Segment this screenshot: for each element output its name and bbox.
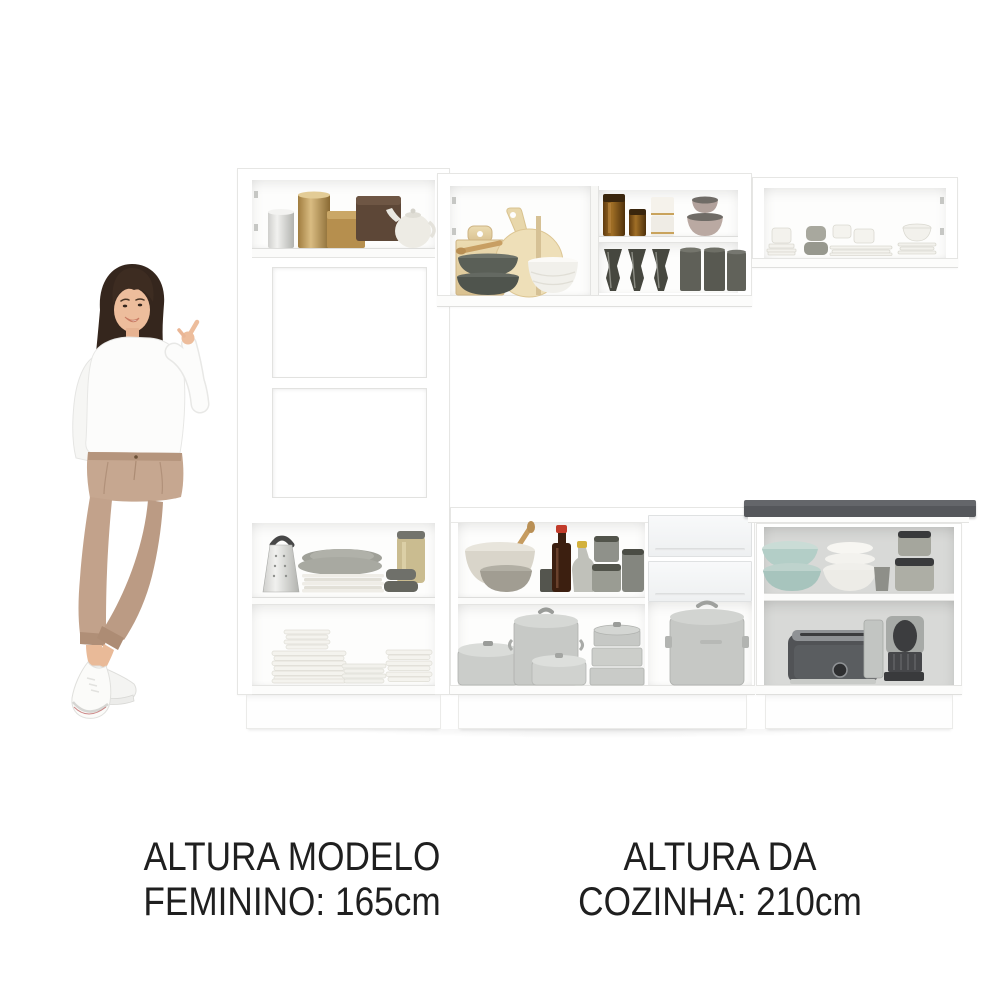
tall-cabinet-open-niche-2 — [272, 388, 427, 498]
woman-face — [114, 288, 150, 332]
woman-ankle-crossed — [92, 644, 114, 672]
woman-hair — [89, 264, 172, 433]
tall-cabinet-open-niche-1 — [272, 267, 427, 378]
tall-cabinet-top-shelfboard — [252, 248, 435, 258]
woman-pointing-finger — [190, 322, 197, 334]
base-cabinet-middle-plinth — [458, 695, 747, 729]
tall-cabinet-base-shelf-2 — [252, 605, 435, 685]
tall-cabinet-base-shelf-1 — [252, 523, 435, 597]
wall-cabinet-middle-shelfboard — [599, 236, 738, 243]
caption-kitchen-height: ALTURA DA COZINHA: 210cm — [570, 835, 869, 925]
base-cabinet-middle-shelfboard — [458, 597, 645, 605]
woman-pointing-arm — [174, 322, 200, 404]
base-cabinet-right-shelfboard — [764, 593, 954, 601]
woman-hair-fringe — [112, 268, 153, 304]
woman-figure — [72, 264, 200, 718]
woman-cuff-crossed — [97, 626, 124, 650]
tall-cabinet-top-compartment — [252, 180, 435, 248]
wall-cabinet-middle-right-top — [599, 190, 738, 236]
wall-cabinet-middle-right-bottom — [599, 243, 738, 293]
wall-cabinet-right-bottom-board — [752, 258, 958, 268]
drawer-1-handle — [655, 548, 745, 551]
base-cabinet-right-plinth — [765, 695, 953, 729]
tall-cabinet-base-shelfboard — [252, 597, 435, 605]
base-cabinet-middle-pot-compartment — [648, 602, 752, 685]
woman-eyes — [123, 304, 142, 308]
woman-ankle-straight — [86, 645, 102, 668]
caption-kitchen-line1: ALTURA DA — [570, 835, 869, 880]
base-cabinet-right-bottom-board — [756, 685, 962, 695]
dark-countertop — [744, 500, 976, 517]
woman-sneaker-front — [72, 662, 111, 718]
tall-cabinet-plinth — [246, 695, 441, 729]
wall-cabinet-middle-bottom-board — [437, 295, 752, 307]
caption-kitchen-line2: COZINHA: 210cm — [570, 880, 869, 925]
woman-leg-straight — [79, 497, 113, 636]
product-image: ALTURA MODELO FEMININO: 165cm ALTURA DA … — [0, 0, 1000, 1000]
woman-smile — [125, 317, 139, 322]
woman-neck — [126, 328, 139, 342]
drawer-2 — [648, 561, 752, 602]
floor-shadow — [240, 729, 966, 741]
woman-pants — [79, 452, 184, 650]
woman-brows — [121, 299, 144, 301]
caption-model-height: ALTURA MODELO FEMININO: 165cm — [142, 835, 441, 925]
base-cabinet-middle-shelf-1 — [458, 523, 645, 597]
woman-thumb — [179, 330, 184, 336]
woman-sweater — [86, 337, 185, 453]
drawer-2-handle — [655, 593, 745, 596]
base-cabinet-right-shelf-1 — [764, 527, 954, 593]
caption-model-line1: ALTURA MODELO — [142, 835, 441, 880]
woman-hand — [182, 332, 195, 345]
wall-cabinet-right-interior — [764, 188, 946, 258]
caption-model-line2: FEMININO: 165cm — [142, 880, 441, 925]
tall-cabinet-bottom-board — [252, 685, 435, 695]
woman-leg-crossed — [104, 500, 163, 640]
base-cabinet-middle-shelf-2 — [458, 605, 645, 685]
wall-cabinet-middle-left-compartment — [450, 186, 590, 295]
base-cabinet-right-shelf-2 — [764, 601, 954, 685]
woman-sneaker-back — [86, 666, 136, 704]
drawer-1 — [648, 515, 752, 557]
woman-left-arm — [73, 358, 95, 462]
wall-cabinet-middle-divider — [590, 186, 599, 295]
base-cabinet-middle-bottom-board — [450, 685, 755, 695]
woman-cuff-straight — [80, 632, 106, 646]
